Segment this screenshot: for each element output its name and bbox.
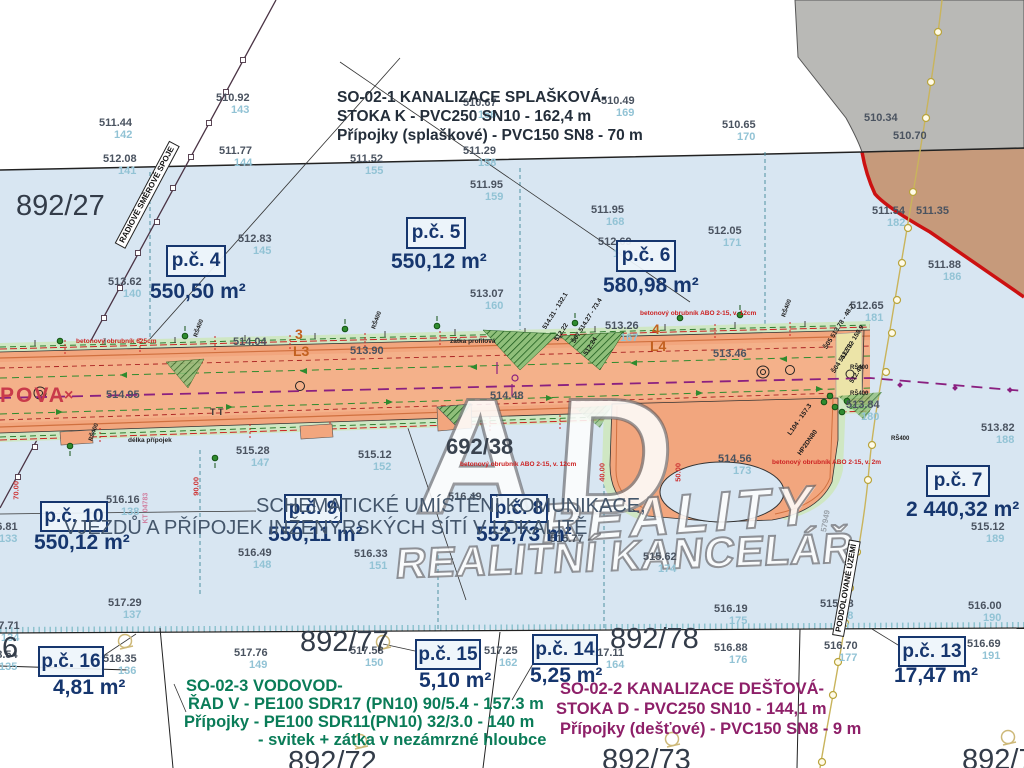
elevation-label: 516.88176 bbox=[714, 643, 748, 666]
so023-line3: Přípojky - PE100 SDR11(PN10) 32/3.0 - 14… bbox=[184, 714, 534, 731]
cadastral-number: 692/38 bbox=[446, 436, 513, 458]
curb-note-label: betonový obrubník ABO 2-15, v. 12cm bbox=[640, 311, 756, 318]
curb-note-label: betonový obrubník 625cm bbox=[76, 339, 157, 346]
cadastral-number: 6 bbox=[2, 634, 18, 663]
elevation-label: 511.88186 bbox=[928, 260, 961, 283]
cadastral-number: 892/27 bbox=[16, 192, 105, 221]
elevation-label: 516.33151 bbox=[354, 549, 388, 572]
elevation-label: 512.08141 bbox=[103, 154, 137, 177]
elevation-label: 515.12152 bbox=[358, 450, 392, 473]
cadastral-number: 892/72 bbox=[288, 748, 377, 768]
street-name-label: POVA bbox=[0, 385, 66, 406]
elevation-label: 515.28147 bbox=[236, 446, 270, 469]
elevation-label: 513.62140 bbox=[108, 277, 142, 300]
so022-line3: Přípojky (dešťové) - PVC150 SN8 - 9 m bbox=[560, 721, 861, 738]
elevation-label: 514.56173 bbox=[718, 454, 752, 477]
elevation-label: 517.25162 bbox=[484, 646, 518, 669]
parcel-number-box: p.č. 5 bbox=[406, 217, 466, 249]
parcel-area-label: 550,50 m² bbox=[150, 280, 246, 304]
cadastral-number: 892/7 bbox=[962, 746, 1024, 768]
lamp-section-label: 3 bbox=[295, 327, 303, 341]
elevation-label: 513.07160 bbox=[470, 289, 504, 312]
elevation-label: 513.82188 bbox=[981, 423, 1015, 446]
parcel-number-box: p.č. 4 bbox=[166, 245, 226, 277]
parcel-area-label: 4,81 m² bbox=[53, 676, 125, 700]
elevation-label: 514.48 bbox=[490, 391, 524, 402]
elevation-label: 510.70 bbox=[893, 131, 927, 142]
elevation-label: 516.00190 bbox=[968, 601, 1002, 624]
dimension-label: 50.00 bbox=[674, 463, 682, 482]
elevation-label: 515.62174 bbox=[643, 552, 677, 575]
parcel-area-label: 550,12 m² bbox=[391, 250, 487, 274]
parcel-area-label: 5,10 m² bbox=[419, 669, 491, 693]
cadastral-number: 892/78 bbox=[610, 625, 699, 654]
so021-line3: Přípojky (splaškové) - PVC150 SN8 - 70 m bbox=[337, 128, 643, 144]
elevation-label: 516.70177 bbox=[824, 641, 858, 664]
elevation-label: 513.90 bbox=[350, 346, 384, 357]
parcel-area-label: 2 440,32 m² bbox=[906, 498, 1019, 522]
elevation-label: 511.95159 bbox=[470, 180, 503, 203]
elevation-label: 516.16138 bbox=[106, 495, 140, 518]
elevation-label: 516.81133 bbox=[0, 522, 18, 545]
parcel-area-label: 580,98 m² bbox=[603, 274, 699, 298]
elevation-label: 511.52155 bbox=[350, 154, 383, 177]
parcel-number-box: p.č. 15 bbox=[415, 639, 481, 670]
so021-line2: STOKA K - PVC250 SN10 - 162,4 m bbox=[337, 109, 591, 125]
elevation-label: 514.95 bbox=[106, 390, 140, 401]
parcel-number-box: p.č. 7 bbox=[926, 465, 990, 497]
parcel-number-box: p.č. 13 bbox=[898, 636, 966, 667]
elevation-label: 512.83145 bbox=[238, 234, 272, 257]
schematic-caption-line2: VJEZDŮ A PŘÍPOJEK INŽENÝRSKÝCH SÍTÍ V LO… bbox=[64, 518, 587, 538]
elevation-label: 516.69191 bbox=[967, 639, 1001, 662]
elevation-label: 516.49148 bbox=[238, 548, 272, 571]
so023-line2: ŘAD V - PE100 SDR17 (PN10) 90/5.4 - 157.… bbox=[188, 696, 544, 713]
dimension-label: 90.00 bbox=[192, 477, 200, 496]
so023-line1: SO-02-3 VODOVOD- bbox=[186, 678, 343, 695]
dimension-label: 40.00 bbox=[598, 463, 606, 482]
elevation-label: 518.35136 bbox=[103, 654, 137, 677]
curb-note-label: betonový obrubník ABO 2-15, v. 2m bbox=[772, 460, 881, 467]
lamp-section-label: L3 bbox=[293, 344, 309, 358]
elevation-label: 511.54182 bbox=[872, 206, 905, 229]
parcel-area-label: 17,47 m² bbox=[894, 664, 978, 688]
so021-line1: SO-02-1 KANALIZACE SPLAŠKOVÁ- bbox=[337, 90, 607, 106]
schematic-caption-line1: SCHEMATICKÉ UMÍSTĚNÍ KOMUNIKACE, bbox=[256, 496, 646, 516]
elevation-label: 511.77144 bbox=[219, 146, 252, 169]
parcel-number-box: p.č. 14 bbox=[532, 634, 598, 665]
street-cross-mark: × bbox=[64, 388, 73, 404]
parcel-number-box: p.č. 16 bbox=[38, 646, 104, 677]
parcel-number-box: p.č. 6 bbox=[616, 240, 676, 272]
elevation-label: 511.35 bbox=[916, 206, 949, 217]
pipe-note-label: zátka profilová bbox=[450, 339, 496, 346]
elevation-label: 513.46 bbox=[713, 349, 747, 360]
elevation-label: 511.44142 bbox=[99, 118, 132, 141]
cadastral-number: 892/77 bbox=[300, 628, 389, 657]
shaft-rs400-label: RŠ400 bbox=[850, 391, 868, 397]
tee-mark: T T bbox=[210, 408, 224, 417]
elevation-label: 513.84180 bbox=[846, 400, 880, 423]
curb-note-label: betonový obrubník ABO 2-15, v. 12cm bbox=[460, 462, 576, 469]
elevation-label: 512.05171 bbox=[708, 226, 742, 249]
elevation-label: 510.65170 bbox=[722, 120, 756, 143]
elevation-label: 510.34 bbox=[864, 113, 898, 124]
elevation-label: 511.95168 bbox=[591, 205, 624, 228]
lamp-section-label: 4 bbox=[652, 322, 660, 336]
so022-line1: SO-02-2 KANALIZACE DEŠŤOVÁ- bbox=[560, 681, 824, 698]
lamp-section-label: L4 bbox=[650, 339, 666, 353]
elevation-label: 510.92143 bbox=[216, 93, 250, 116]
elevation-label: 515.12189 bbox=[971, 522, 1005, 545]
shaft-rs400-label: RŠ400 bbox=[891, 436, 909, 442]
so023-line4: - svitek + zátka v nezámrzné hloubce bbox=[258, 732, 546, 749]
dimension-label: 70.00 bbox=[12, 481, 20, 500]
pipe-note-label: délka přípojek bbox=[128, 438, 172, 445]
elevation-label: 517.29137 bbox=[108, 598, 142, 621]
elevation-label: 516.19175 bbox=[714, 604, 748, 627]
so022-line2: STOKA D - PVC250 SN10 - 144,1 m bbox=[556, 701, 827, 718]
elevation-label: 511.29158 bbox=[463, 146, 496, 169]
cadastral-number: 892/73 bbox=[602, 746, 691, 768]
elevation-label: 517.76149 bbox=[234, 648, 268, 671]
elevation-label: 512.65181 bbox=[850, 301, 884, 324]
elevation-label: 514.04 bbox=[233, 337, 267, 348]
elevation-label: 513.26167 bbox=[605, 321, 639, 344]
site-plan-canvas: AD REALITY REALITNÍ KANCELÁŘ SO-02-1 KAN… bbox=[0, 0, 1024, 768]
